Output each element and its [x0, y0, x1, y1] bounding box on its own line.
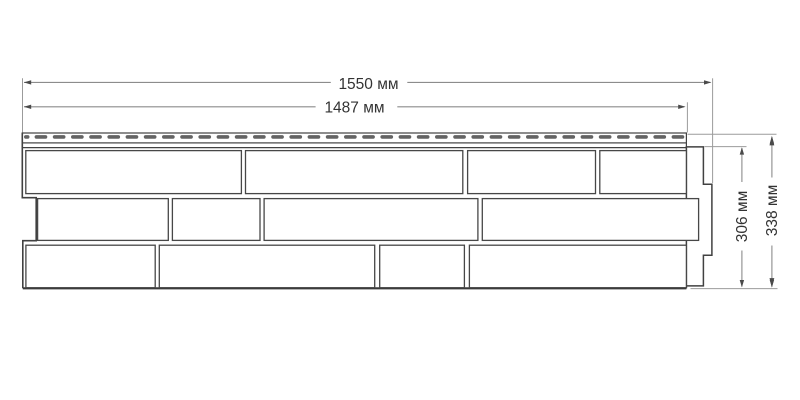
svg-text:338 мм: 338 мм	[764, 185, 781, 236]
svg-text:306 мм: 306 мм	[734, 191, 751, 242]
svg-text:1487 мм: 1487 мм	[324, 100, 384, 117]
svg-text:1550 мм: 1550 мм	[338, 76, 398, 93]
